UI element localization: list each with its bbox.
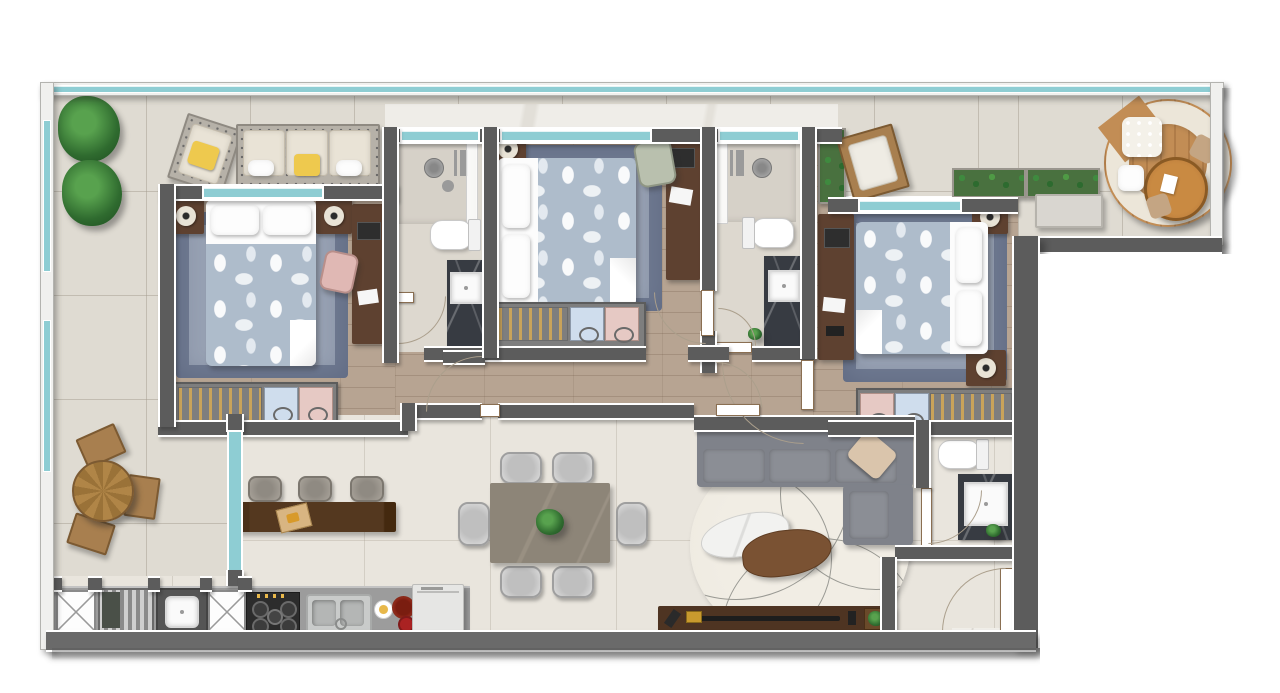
laundry-sink <box>165 596 199 628</box>
centerpiece-plant <box>536 509 564 535</box>
louver-dark-panel <box>102 592 120 628</box>
bedroom1-door[interactable] <box>480 404 500 417</box>
bedroom3-window <box>858 199 962 212</box>
table-lamp-icon <box>324 206 344 226</box>
cutting-board <box>276 502 313 533</box>
desk-papers <box>669 186 693 206</box>
entry-wall-stub <box>880 557 897 630</box>
bathroom2-shower <box>716 140 796 222</box>
wardrobe-drawer-blue <box>264 387 298 421</box>
bed-pillow <box>502 234 530 298</box>
round-dining-table <box>72 460 134 522</box>
guest-bath-south-wall <box>895 545 1018 561</box>
wall <box>158 420 408 437</box>
wardrobe-hanging-rail <box>498 307 568 341</box>
sofa-pillow <box>248 160 274 176</box>
shower-head-icon <box>424 158 444 178</box>
dining-chair <box>616 502 648 546</box>
sofa-pillow <box>336 160 362 176</box>
wall <box>482 127 499 358</box>
plate-icon <box>374 600 393 619</box>
dining-chair <box>552 566 594 598</box>
bedroom3-desk <box>818 214 854 360</box>
sofa-cushion <box>703 449 765 483</box>
duct-shaft-panel <box>208 590 246 634</box>
bed-pillow <box>211 205 259 235</box>
service-wall-stub <box>88 576 102 592</box>
bar-stool <box>350 476 384 502</box>
breakfast-bar <box>236 502 396 532</box>
food-icon <box>286 512 300 524</box>
duvet-fold <box>290 320 316 366</box>
remote-icon <box>664 609 681 628</box>
dining-table <box>490 483 610 563</box>
sofa-cushion <box>769 449 831 483</box>
bedroom1-window <box>202 186 324 199</box>
yellow-pillow-icon <box>294 154 320 176</box>
bedroom2-wardrobe <box>494 302 646 348</box>
guest-toilet <box>938 440 980 469</box>
desk-papers <box>357 289 379 306</box>
dining-chair <box>552 452 594 484</box>
outside-area <box>1040 254 1280 693</box>
dining-chair <box>500 452 542 484</box>
white-pillow <box>1118 165 1144 191</box>
guest-toilet-tank <box>976 439 989 470</box>
duvet-fold <box>856 310 882 354</box>
terrace-railing-glass-left <box>43 320 51 472</box>
potted-plant-icon <box>58 96 120 162</box>
toilet <box>752 218 794 248</box>
burner-center <box>267 609 283 625</box>
console-phone <box>848 611 856 625</box>
terrace-glass-wall <box>227 430 243 582</box>
desk-accessory <box>826 326 844 336</box>
garden-bench <box>1035 194 1103 228</box>
laundry-sink-unit <box>156 588 208 636</box>
wall <box>800 127 817 359</box>
terrace-railing-glass-top <box>52 85 1212 93</box>
potted-plant-icon <box>62 160 122 226</box>
sofa-cushion <box>849 491 889 539</box>
wall <box>498 403 694 420</box>
guest-bath-west-wall <box>914 420 931 488</box>
bed-bedroom1 <box>206 200 316 366</box>
shower-head-icon <box>752 158 772 178</box>
bed-pillow <box>956 227 982 283</box>
console-books <box>686 611 702 623</box>
wall <box>382 127 399 363</box>
shower-glass-panel <box>466 140 478 226</box>
tv-soundbar <box>700 616 840 621</box>
guest-bath-plant <box>986 524 1001 537</box>
service-wall-stub <box>148 576 160 592</box>
lounge-cushion <box>847 134 899 191</box>
bottom-shadow <box>52 648 1042 660</box>
jog-wall <box>400 403 417 431</box>
kitchen-double-sink <box>306 594 372 634</box>
bathroom2-window <box>718 129 800 142</box>
terrace-south-wall-right <box>1018 236 1222 254</box>
bed-bedroom3 <box>856 222 988 354</box>
bed-pillow <box>502 164 530 228</box>
bar-stool <box>248 476 282 502</box>
wardrobe-hanging-rail <box>178 387 262 421</box>
nightstand <box>966 350 1006 386</box>
duvet-fold <box>610 258 636 306</box>
terrace-marble-walkway <box>385 104 838 128</box>
table-lamp-icon <box>976 358 996 378</box>
bed-pillow <box>263 205 311 235</box>
floor-plan <box>0 0 1280 693</box>
shower-glass-panel <box>716 140 728 224</box>
outdoor-sofa <box>236 124 380 188</box>
service-wall-stub <box>238 576 252 592</box>
bedroom1-desk <box>352 204 386 344</box>
plush-ottoman <box>1122 117 1162 157</box>
gas-cooktop <box>246 592 300 634</box>
bathroom2-sink <box>768 270 800 302</box>
laptop-icon <box>357 222 381 240</box>
bar-stool <box>298 476 332 502</box>
outdoor-dining-set <box>48 424 178 564</box>
wardrobe-drawer-pink <box>605 307 639 341</box>
stove-knobs <box>257 594 289 598</box>
refrigerator <box>412 584 464 632</box>
fridge-door-line <box>417 591 459 593</box>
laptop-icon <box>824 228 850 248</box>
service-wall-stub <box>200 576 212 592</box>
toilet <box>430 220 472 250</box>
sink-basin <box>312 600 336 626</box>
toilet-tank <box>742 217 755 249</box>
fridge-handle <box>421 587 443 590</box>
terrace-railing-glass-left <box>43 120 51 272</box>
desk-papers <box>822 297 845 313</box>
wardrobe-drawer-blue <box>570 307 604 341</box>
toilet-tank <box>468 219 481 251</box>
nightstand <box>316 198 352 234</box>
apartment-right-wall <box>1012 236 1040 648</box>
bedroom2-window <box>500 129 652 142</box>
table-lamp-icon <box>176 206 196 226</box>
bed-pillow <box>956 290 982 346</box>
dining-chair <box>500 566 542 598</box>
bathroom1-window <box>400 129 480 142</box>
wall <box>700 127 717 291</box>
tv-console <box>658 606 894 632</box>
louvered-unit <box>98 588 154 636</box>
sofa-chaise-section <box>843 485 913 545</box>
wall <box>158 184 176 427</box>
bathroom1-sink <box>450 272 482 304</box>
cross-junction-wall <box>688 345 729 362</box>
right-shadow <box>1222 88 1232 254</box>
bed-bedroom2 <box>498 158 636 306</box>
planter-box <box>952 168 1026 198</box>
wardrobe-drawer-pink <box>299 387 333 421</box>
duct-shaft-panel <box>56 590 96 634</box>
shower-fixture <box>730 150 744 176</box>
dining-chair <box>458 502 490 546</box>
shower-drain-icon <box>442 180 454 192</box>
faucet-icon <box>335 618 347 630</box>
desk-chair <box>632 137 677 189</box>
bathroom1-shower <box>398 140 476 224</box>
